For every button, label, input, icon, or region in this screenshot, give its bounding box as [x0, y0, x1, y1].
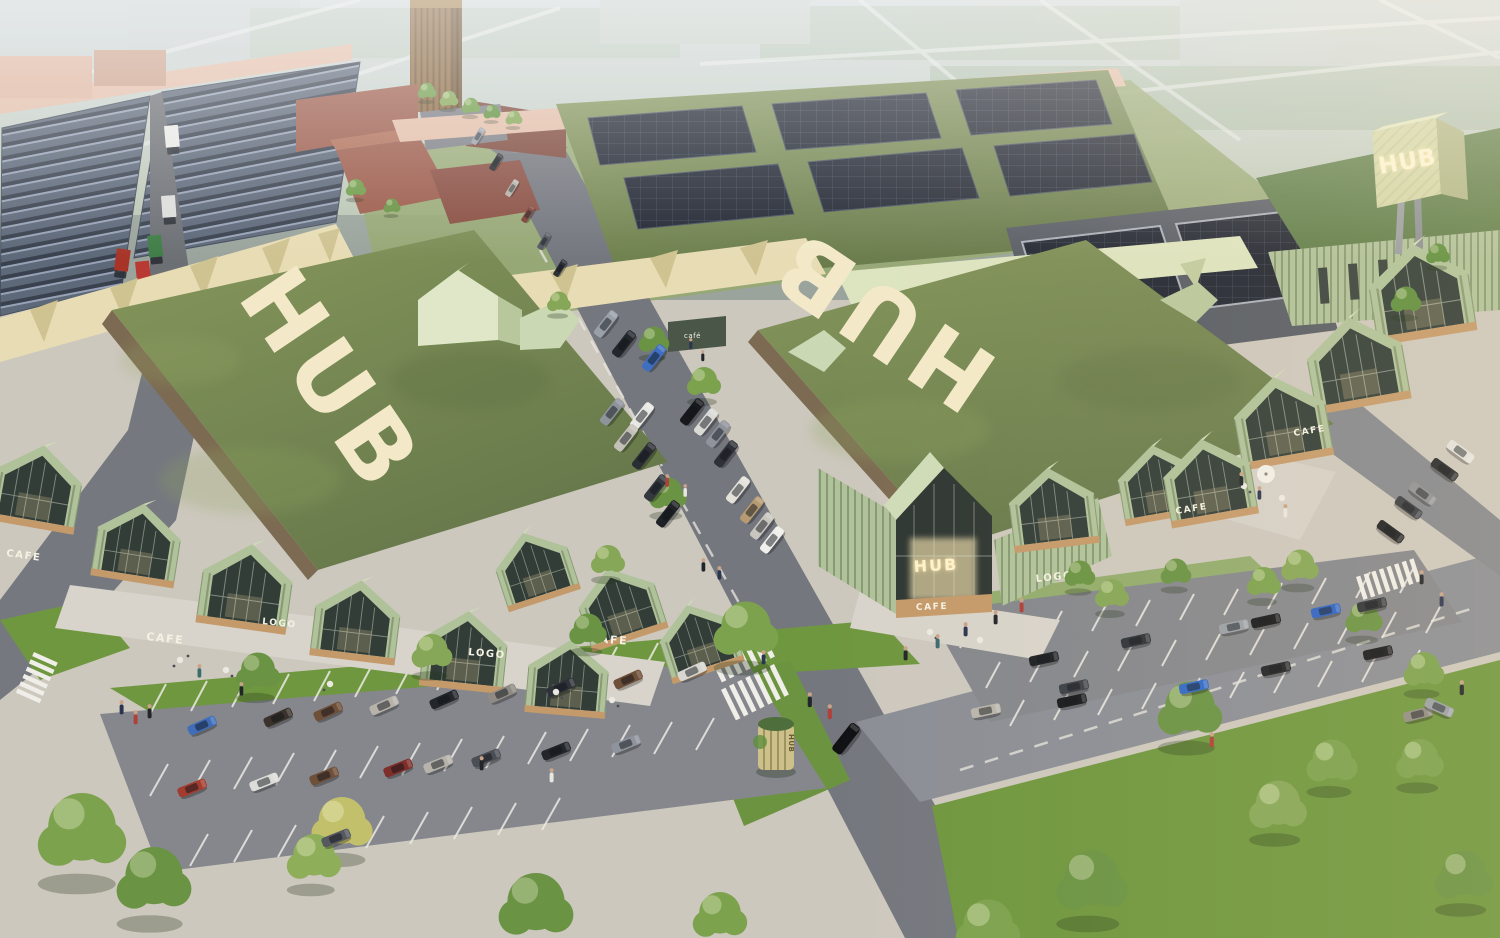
- aerial-rendering-stage: café HUB HUB HUB: [0, 0, 1500, 938]
- warm-light-overlay: [0, 0, 1500, 938]
- hub-aerial-rendering: café HUB HUB HUB: [0, 0, 1500, 938]
